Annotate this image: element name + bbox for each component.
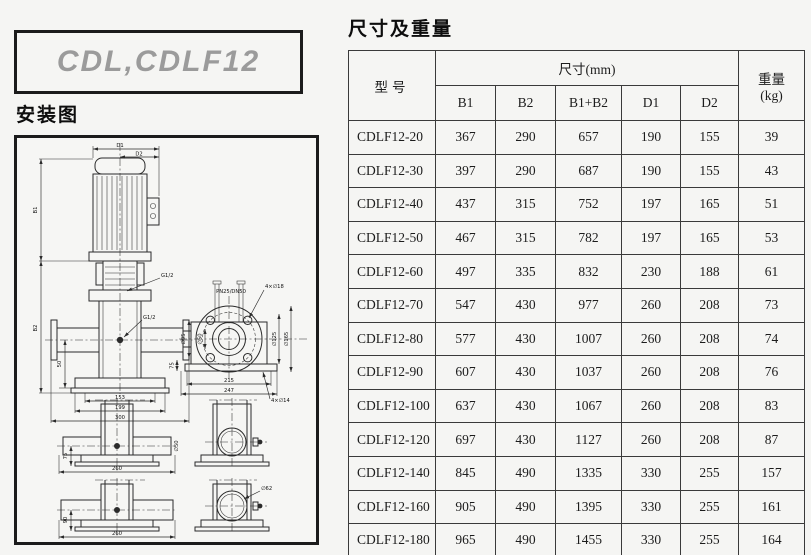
value-cell: 437 bbox=[436, 188, 496, 222]
header-b2: B2 bbox=[496, 86, 556, 121]
value-cell: 1455 bbox=[556, 524, 622, 555]
model-cell: CDLF12-140 bbox=[349, 456, 436, 490]
bolt-holes-top-label: 4×∅18 bbox=[265, 284, 284, 290]
value-cell: 965 bbox=[436, 524, 496, 555]
port-center-mark bbox=[117, 337, 123, 343]
table-row: CDLF12-4043731575219716551 bbox=[349, 188, 805, 222]
dimensions-weight-table: 型号 尺寸(mm) 重量 (kg) B1 B2 B1+B2 D1 D2 CDLF… bbox=[348, 50, 805, 555]
value-cell: 53 bbox=[739, 221, 805, 255]
brand-box: CDL,CDLF12 bbox=[14, 30, 303, 94]
value-cell: 490 bbox=[496, 456, 556, 490]
catalog-page: CDL,CDLF12 安装图 尺寸及重量 bbox=[0, 0, 811, 555]
value-cell: 255 bbox=[681, 490, 739, 524]
dim-label-215: 215 bbox=[224, 378, 234, 384]
header-weight: 重量 (kg) bbox=[739, 51, 805, 121]
value-cell: 1007 bbox=[556, 322, 622, 356]
header-weight-line2: (kg) bbox=[739, 88, 804, 104]
value-cell: 165 bbox=[681, 188, 739, 222]
port-thread-label-side: G1/2 bbox=[143, 315, 155, 321]
value-cell: 74 bbox=[739, 322, 805, 356]
brand-model-text: CDL,CDLF12 bbox=[57, 45, 260, 79]
value-cell: 260 bbox=[622, 288, 681, 322]
value-cell: 255 bbox=[681, 524, 739, 555]
value-cell: 315 bbox=[496, 221, 556, 255]
table-row: CDLF12-3039729068719015543 bbox=[349, 154, 805, 188]
dim-label-247: 247 bbox=[224, 388, 234, 394]
value-cell: 430 bbox=[496, 389, 556, 423]
value-cell: 467 bbox=[436, 221, 496, 255]
value-cell: 430 bbox=[496, 423, 556, 457]
base-side-view-2: ∅62 bbox=[195, 478, 272, 533]
value-cell: 190 bbox=[622, 121, 681, 155]
value-cell: 157 bbox=[739, 456, 805, 490]
value-cell: 208 bbox=[681, 423, 739, 457]
value-cell: 76 bbox=[739, 356, 805, 390]
value-cell: 165 bbox=[681, 221, 739, 255]
flange-top-view: PN25/DN50 4×∅18 bbox=[170, 281, 308, 404]
header-d1: D1 bbox=[622, 86, 681, 121]
value-cell: 39 bbox=[739, 121, 805, 155]
installation-diagram-title: 安装图 bbox=[16, 100, 79, 127]
model-cell: CDLF12-80 bbox=[349, 322, 436, 356]
table-row: CDLF12-6049733583223018861 bbox=[349, 255, 805, 289]
table-row: CDLF12-100637430106726020883 bbox=[349, 389, 805, 423]
model-cell: CDLF12-30 bbox=[349, 154, 436, 188]
table-row: CDLF12-7054743097726020873 bbox=[349, 288, 805, 322]
table-row: CDLF12-90607430103726020876 bbox=[349, 356, 805, 390]
value-cell: 607 bbox=[436, 356, 496, 390]
model-cell: CDLF12-70 bbox=[349, 288, 436, 322]
model-cell: CDLF12-20 bbox=[349, 121, 436, 155]
value-cell: 255 bbox=[681, 456, 739, 490]
base1-height-label: 75 bbox=[63, 453, 69, 460]
model-cell: CDLF12-160 bbox=[349, 490, 436, 524]
value-cell: 697 bbox=[436, 423, 496, 457]
table-row: CDLF12-2036729065719015539 bbox=[349, 121, 805, 155]
value-cell: 188 bbox=[681, 255, 739, 289]
value-cell: 315 bbox=[496, 188, 556, 222]
value-cell: 330 bbox=[622, 456, 681, 490]
dim-label-50: 50 bbox=[57, 361, 63, 368]
value-cell: 197 bbox=[622, 221, 681, 255]
dia-50-label: ∅50 bbox=[198, 333, 204, 344]
value-cell: 190 bbox=[622, 154, 681, 188]
dimensions-weight-title: 尺寸及重量 bbox=[348, 14, 453, 41]
dim-label-b2: B2 bbox=[33, 325, 39, 332]
value-cell: 637 bbox=[436, 389, 496, 423]
value-cell: 260 bbox=[622, 423, 681, 457]
value-cell: 164 bbox=[739, 524, 805, 555]
model-cell: CDLF12-120 bbox=[349, 423, 436, 457]
value-cell: 577 bbox=[436, 322, 496, 356]
value-cell: 1037 bbox=[556, 356, 622, 390]
header-b1: B1 bbox=[436, 86, 496, 121]
value-cell: 397 bbox=[436, 154, 496, 188]
dim-label-d2: D2 bbox=[135, 151, 142, 157]
value-cell: 330 bbox=[622, 524, 681, 555]
table-header: 型号 尺寸(mm) 重量 (kg) B1 B2 B1+B2 D1 D2 bbox=[349, 51, 805, 121]
value-cell: 260 bbox=[622, 389, 681, 423]
value-cell: 547 bbox=[436, 288, 496, 322]
value-cell: 430 bbox=[496, 322, 556, 356]
value-cell: 977 bbox=[556, 288, 622, 322]
table-row: CDLF12-1609054901395330255161 bbox=[349, 490, 805, 524]
table-row: CDLF12-1408454901335330255157 bbox=[349, 456, 805, 490]
dim-label-300: 300 bbox=[115, 415, 125, 421]
dia-95-label: ∅95 bbox=[181, 333, 187, 344]
model-cell: CDLF12-100 bbox=[349, 389, 436, 423]
port-thread-label-top: G1/2 bbox=[161, 273, 173, 279]
header-b1b2: B1+B2 bbox=[556, 86, 622, 121]
value-cell: 230 bbox=[622, 255, 681, 289]
dim-label-199: 199 bbox=[115, 405, 125, 411]
value-cell: 208 bbox=[681, 322, 739, 356]
model-cell: CDLF12-60 bbox=[349, 255, 436, 289]
value-cell: 430 bbox=[496, 356, 556, 390]
value-cell: 782 bbox=[556, 221, 622, 255]
value-cell: 490 bbox=[496, 524, 556, 555]
pump-installation-drawing: D1 D2 B1 B2 G1/2 G1/2 153 bbox=[17, 138, 316, 542]
table-body: CDLF12-2036729065719015539CDLF12-3039729… bbox=[349, 121, 805, 555]
value-cell: 905 bbox=[436, 490, 496, 524]
model-cell: CDLF12-180 bbox=[349, 524, 436, 555]
value-cell: 73 bbox=[739, 288, 805, 322]
header-d2: D2 bbox=[681, 86, 739, 121]
motor-ribs bbox=[97, 176, 142, 250]
value-cell: 208 bbox=[681, 288, 739, 322]
value-cell: 335 bbox=[496, 255, 556, 289]
base2-width-label: 260 bbox=[112, 531, 122, 537]
value-cell: 497 bbox=[436, 255, 496, 289]
value-cell: 197 bbox=[622, 188, 681, 222]
base-front-view-2: 90 260 bbox=[57, 478, 177, 539]
value-cell: 61 bbox=[739, 255, 805, 289]
model-cell: CDLF12-50 bbox=[349, 221, 436, 255]
dim-label-d1: D1 bbox=[116, 143, 123, 149]
value-cell: 657 bbox=[556, 121, 622, 155]
value-cell: 1335 bbox=[556, 456, 622, 490]
value-cell: 161 bbox=[739, 490, 805, 524]
value-cell: 290 bbox=[496, 121, 556, 155]
value-cell: 51 bbox=[739, 188, 805, 222]
terminal-box bbox=[147, 198, 159, 225]
model-cell: CDLF12-90 bbox=[349, 356, 436, 390]
value-cell: 430 bbox=[496, 288, 556, 322]
value-cell: 208 bbox=[681, 356, 739, 390]
value-cell: 43 bbox=[739, 154, 805, 188]
model-cell: CDLF12-40 bbox=[349, 188, 436, 222]
value-cell: 687 bbox=[556, 154, 622, 188]
value-cell: 752 bbox=[556, 188, 622, 222]
value-cell: 1395 bbox=[556, 490, 622, 524]
table-row: CDLF12-80577430100726020874 bbox=[349, 322, 805, 356]
value-cell: 87 bbox=[739, 423, 805, 457]
value-cell: 83 bbox=[739, 389, 805, 423]
value-cell: 1127 bbox=[556, 423, 622, 457]
dia-125-label: ∅125 bbox=[272, 332, 278, 346]
value-cell: 367 bbox=[436, 121, 496, 155]
value-cell: 208 bbox=[681, 389, 739, 423]
installation-diagram-box: D1 D2 B1 B2 G1/2 G1/2 153 bbox=[14, 135, 319, 545]
value-cell: 155 bbox=[681, 121, 739, 155]
value-cell: 290 bbox=[496, 154, 556, 188]
base2-port-label: ∅62 bbox=[261, 486, 272, 492]
base2-height-label: 90 bbox=[63, 517, 69, 524]
dia-165-label: ∅165 bbox=[284, 332, 290, 346]
header-model: 型号 bbox=[349, 51, 436, 121]
value-cell: 490 bbox=[496, 490, 556, 524]
dim-label-75-flange: 75 bbox=[170, 362, 176, 369]
bolt-holes-bottom-label: 4×∅14 bbox=[271, 398, 290, 404]
value-cell: 832 bbox=[556, 255, 622, 289]
value-cell: 845 bbox=[436, 456, 496, 490]
base-side-view-1 bbox=[195, 398, 269, 468]
header-weight-line1: 重量 bbox=[739, 68, 804, 88]
value-cell: 260 bbox=[622, 322, 681, 356]
header-dimensions: 尺寸(mm) bbox=[436, 51, 739, 86]
table-row: CDLF12-120697430112726020887 bbox=[349, 423, 805, 457]
base1-port-label: ∅50 bbox=[174, 440, 180, 451]
table-row: CDLF12-1809654901455330255164 bbox=[349, 524, 805, 555]
dim-label-b1: B1 bbox=[33, 207, 39, 214]
flange-base-plate bbox=[185, 364, 277, 371]
value-cell: 1067 bbox=[556, 389, 622, 423]
flange-spec-label: PN25/DN50 bbox=[216, 289, 246, 295]
table-row: CDLF12-5046731578219716553 bbox=[349, 221, 805, 255]
pump-front-view: D1 D2 B1 B2 G1/2 G1/2 153 bbox=[33, 143, 195, 423]
value-cell: 330 bbox=[622, 490, 681, 524]
base1-width-label: 260 bbox=[112, 466, 122, 472]
value-cell: 155 bbox=[681, 154, 739, 188]
value-cell: 260 bbox=[622, 356, 681, 390]
